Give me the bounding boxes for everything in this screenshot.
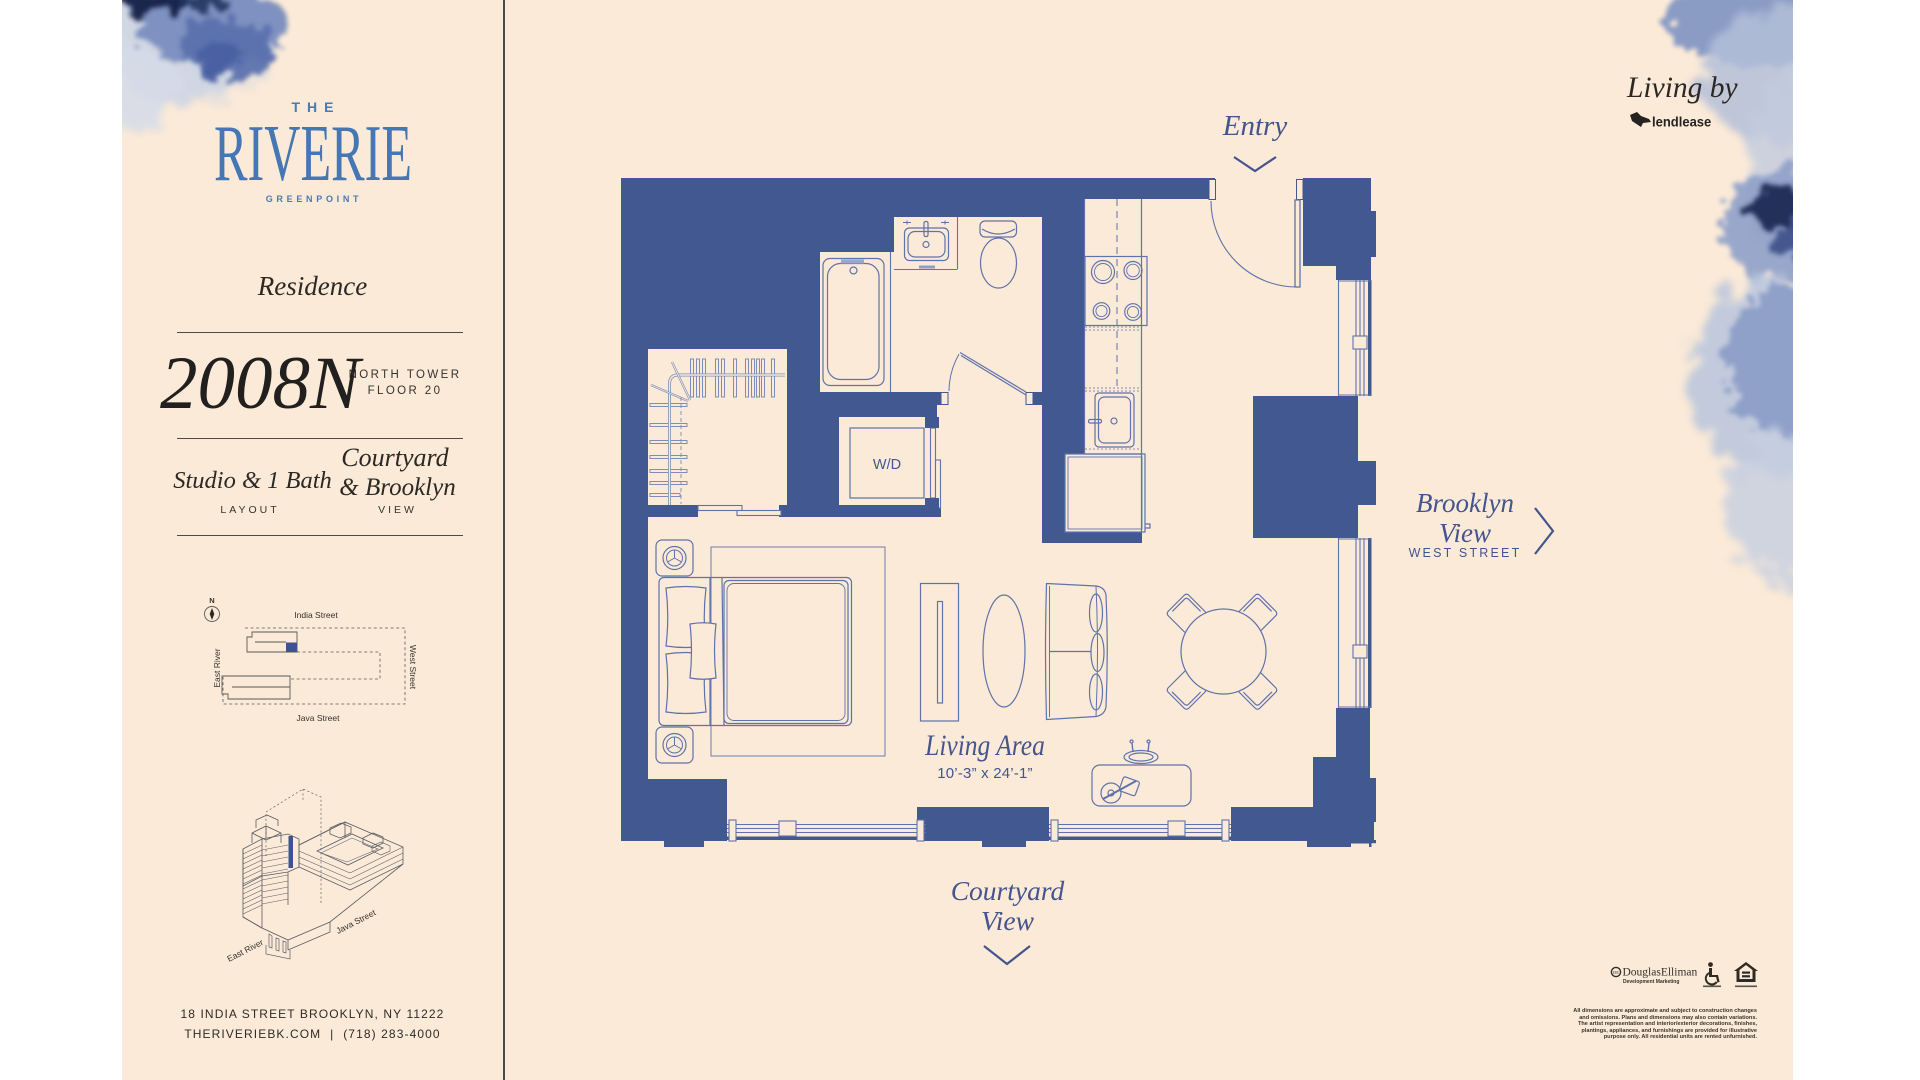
svg-text:East River: East River <box>212 648 222 687</box>
svg-text:GREENPOINT: GREENPOINT <box>266 194 363 204</box>
svg-text:RIVERIE: RIVERIE <box>214 110 412 198</box>
svg-text:W/D: W/D <box>873 457 901 473</box>
svg-text:India Street: India Street <box>294 610 338 620</box>
svg-text:East River: East River <box>225 937 265 964</box>
svg-text:Development Marketing: Development Marketing <box>1623 979 1679 985</box>
svg-text:West Street: West Street <box>408 645 418 690</box>
svg-text:DE: DE <box>1613 970 1619 975</box>
svg-text:Java Street: Java Street <box>297 713 341 723</box>
svg-text:DouglasElliman: DouglasElliman <box>1623 967 1698 979</box>
svg-text:N: N <box>209 596 214 605</box>
svg-text:Java Street: Java Street <box>334 907 377 936</box>
